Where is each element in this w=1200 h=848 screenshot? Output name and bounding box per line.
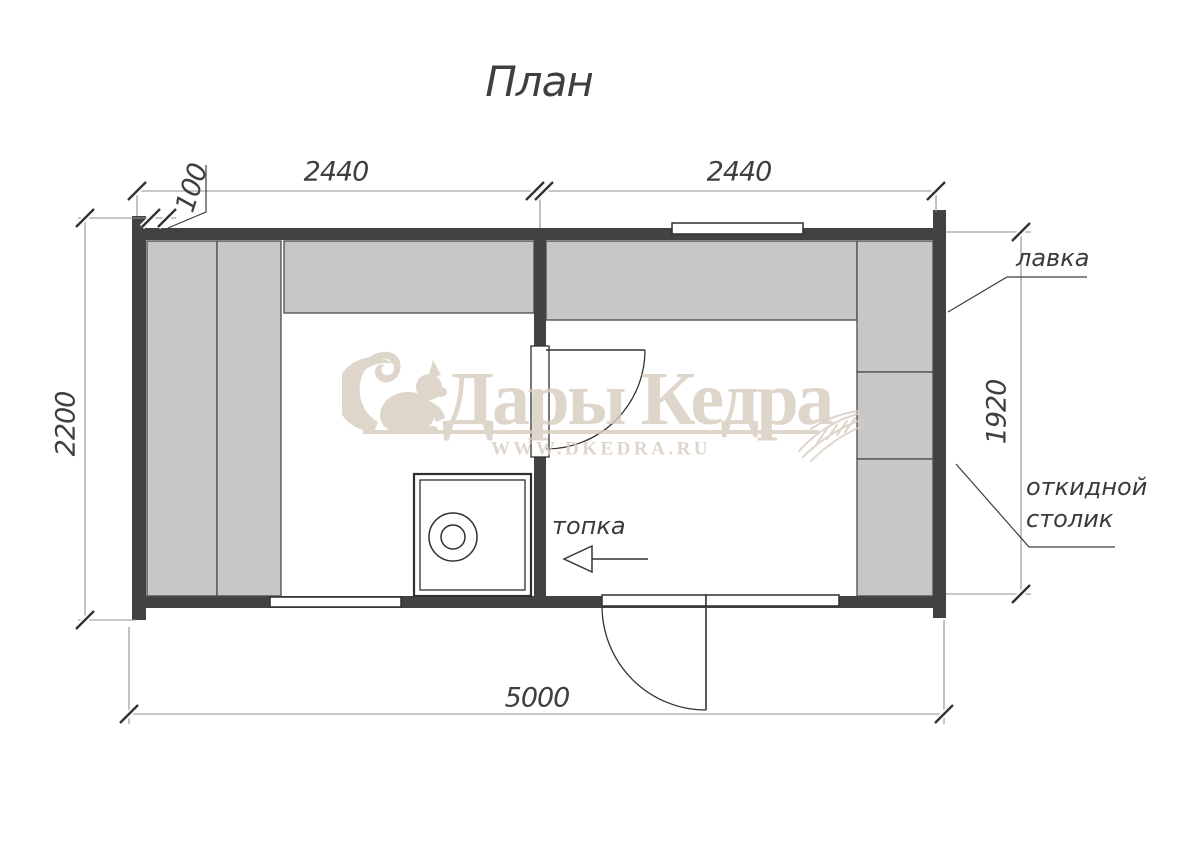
folding-table-label-line1: откидной [1026, 475, 1147, 499]
dimension-room-right-length: 2440 [707, 159, 772, 186]
floor-plan-page: Дары Кедра WWW.DKEDRA.RU План 2440 2440 … [0, 0, 1200, 848]
dimension-interior-height: 1920 [984, 380, 1011, 445]
dimension-total-length: 5000 [505, 685, 570, 712]
bench-label: лавка [1016, 246, 1089, 270]
dimension-room-left-length: 2440 [304, 159, 369, 186]
folding-table-label-line2: столик [1026, 507, 1113, 531]
page-title: План [485, 61, 593, 103]
dimension-wall-thickness: 100 [172, 161, 213, 216]
dimension-building-width: 2200 [53, 392, 80, 457]
annotation-layer: План 2440 2440 100 2200 1920 5000 лавка … [0, 0, 1200, 848]
firebox-label: топка [552, 514, 626, 538]
